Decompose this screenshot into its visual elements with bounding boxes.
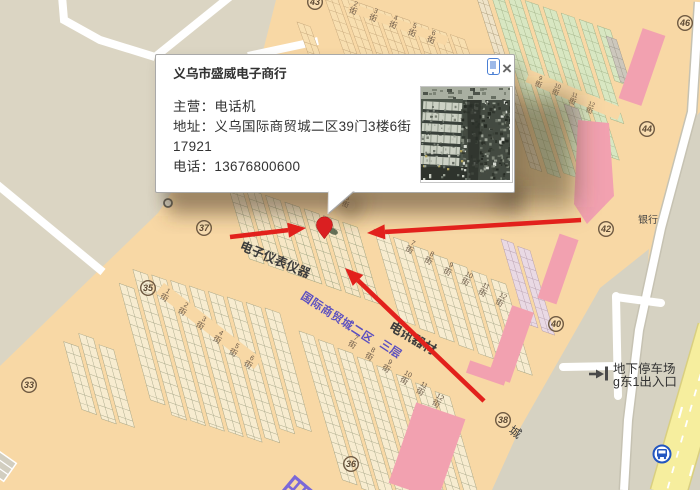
svg-text:银行: 银行 — [638, 214, 658, 226]
svg-text:46: 46 — [679, 18, 691, 28]
svg-text:43: 43 — [309, 0, 320, 7]
svg-text:g东1出入口: g东1出入口 — [613, 375, 677, 389]
svg-text:38: 38 — [498, 415, 508, 425]
svg-text:37: 37 — [199, 223, 210, 233]
svg-text:36: 36 — [346, 459, 357, 469]
svg-text:44: 44 — [641, 124, 652, 134]
svg-text:地下停车场: 地下停车场 — [613, 362, 676, 376]
svg-text:40: 40 — [550, 319, 561, 329]
svg-text:35: 35 — [143, 283, 154, 293]
svg-text:33: 33 — [24, 380, 34, 390]
svg-text:42: 42 — [600, 224, 611, 234]
